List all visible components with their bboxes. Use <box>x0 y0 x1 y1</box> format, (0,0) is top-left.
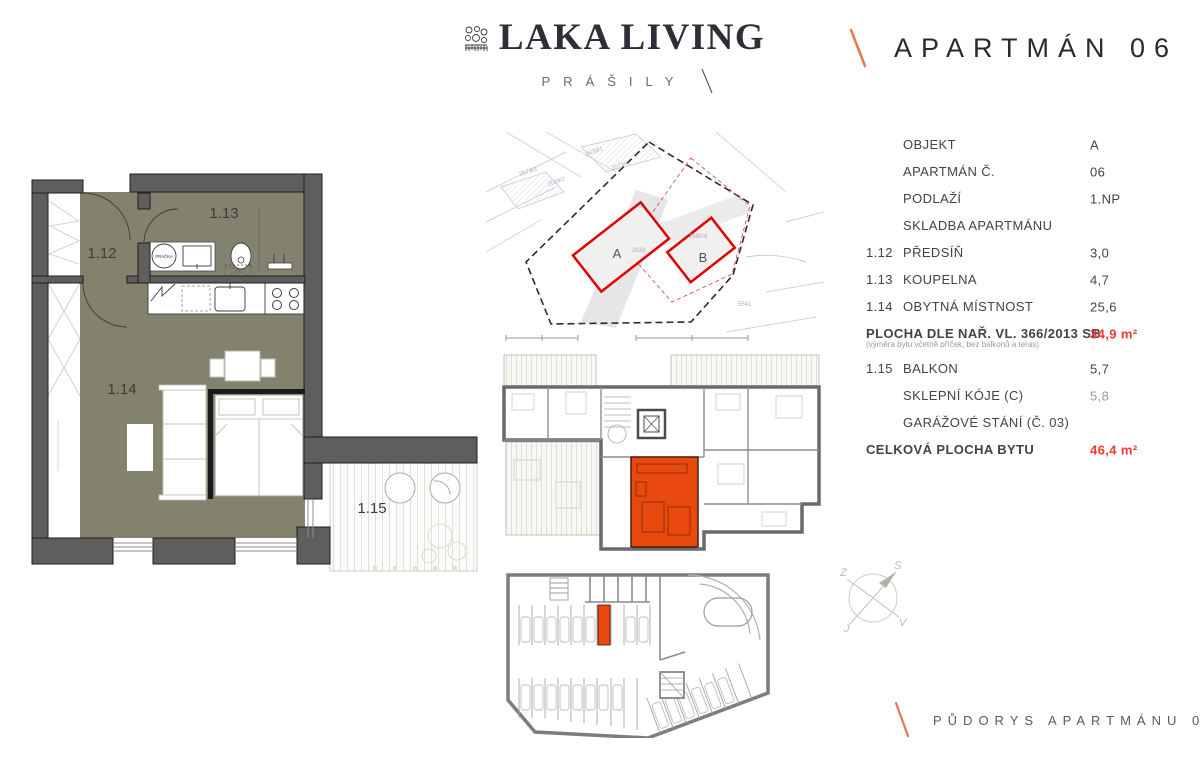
washer-label: PRAČKA <box>155 254 172 259</box>
title-slash-line <box>851 30 865 66</box>
balcony-deck <box>330 463 477 571</box>
hatched-parcel <box>501 172 564 209</box>
ornament-stamp-icon <box>461 23 491 53</box>
footer-text: PŮDORYS APARTMÁNU 06 <box>933 713 1200 728</box>
table-row: 1.12 PŘEDSÍŇ 3,0 <box>866 239 1166 266</box>
row-value: 3,0 <box>1090 245 1109 260</box>
building-b-label: B <box>699 250 708 265</box>
row-value: 4,7 <box>1090 272 1109 287</box>
garage-stair-block <box>660 672 684 698</box>
footer-slash-icon <box>893 700 911 740</box>
garage-plan-drawing <box>500 560 785 738</box>
page-title: APARTMÁN 06 <box>848 26 1178 70</box>
highlighted-apartment <box>631 457 698 547</box>
row-value: 25,6 <box>1090 299 1117 314</box>
sofa <box>159 385 206 500</box>
row-value: 5,7 <box>1090 361 1109 376</box>
coffee-table <box>127 424 153 471</box>
table-row-area-law: PLOCHA DLE NAŘ. VL. 366/2013 SB. 34,9 m² <box>866 320 1166 347</box>
row-label: PODLAŽÍ <box>903 191 961 206</box>
elevator <box>638 410 665 438</box>
compass-west: Z <box>839 567 848 579</box>
brand-logo: LAKA LIVING PRÁŠILY <box>448 16 778 95</box>
row-value: 1.NP <box>1090 191 1121 206</box>
row-label: PŘEDSÍŇ <box>903 245 964 260</box>
row-value: 06 <box>1090 164 1105 179</box>
table-row: OBJEKT A <box>866 131 1166 158</box>
row-value-area: 34,9 m² <box>1090 326 1138 341</box>
row-label: SKLEPNÍ KÓJE (C) <box>903 388 1024 403</box>
logo-slash-icon <box>700 67 714 95</box>
title-slash-icon <box>848 26 868 70</box>
compass-south: J <box>843 623 850 635</box>
room-label-living: 1.14 <box>107 381 136 398</box>
row-label: APARTMÁN Č. <box>903 164 995 179</box>
building-plan-drawing <box>486 352 826 564</box>
compass-east: V <box>899 617 908 629</box>
table-row: SKLEPNÍ KÓJE (C) 5,8 <box>866 382 1166 409</box>
table-row: APARTMÁN Č. 06 <box>866 158 1166 185</box>
room-label-bathroom: 1.13 <box>209 205 238 222</box>
table-row: 1.15 BALKON 5,7 <box>866 355 1166 382</box>
balcony-chair <box>430 473 460 503</box>
row-label: PLOCHA DLE NAŘ. VL. 366/2013 SB. <box>866 326 1105 341</box>
row-value: 5,8 <box>1090 388 1109 403</box>
row-label: OBJEKT <box>903 137 956 152</box>
room-label-hall: 1.12 <box>87 245 116 262</box>
kitchen-counter <box>148 280 305 314</box>
balcony-chair <box>385 473 415 503</box>
footer-caption: PŮDORYS APARTMÁNU 06 <box>893 700 1200 740</box>
wardrobe <box>48 193 80 538</box>
site-plan-drawing: A B 2639/1 2579/4 2579/3 2639/2 2633 258… <box>486 132 824 346</box>
compass-icon: S Z V J <box>836 556 912 640</box>
row-label: BALKON <box>903 361 958 376</box>
svg-text:5541: 5541 <box>738 302 752 308</box>
row-value: A <box>1090 137 1099 152</box>
page: LAKA LIVING PRÁŠILY APARTMÁN 06 <box>0 0 1200 778</box>
brand-subtitle: PRÁŠILY <box>542 74 687 89</box>
table-row: 1.14 OBYTNÁ MÍSTNOST 25,6 <box>866 293 1166 320</box>
svg-text:2633: 2633 <box>632 248 646 254</box>
apartment-info-table: OBJEKT A APARTMÁN Č. 06 PODLAŽÍ 1.NP SKL… <box>866 131 1166 463</box>
room-label-balcony: 1.15 <box>357 500 386 517</box>
highlighted-garage-stall <box>598 605 610 645</box>
row-label: SKLADBA APARTMÁNU <box>903 218 1052 233</box>
table-row: 1.13 KOUPELNA 4,7 <box>866 266 1166 293</box>
table-row: GARÁŽOVÉ STÁNÍ (Č. 03) <box>866 409 1166 436</box>
table-row: PODLAŽÍ 1.NP <box>866 185 1166 212</box>
row-label: KOUPELNA <box>903 272 977 287</box>
table-row-total: CELKOVÁ PLOCHA BYTU 46,4 m² <box>866 436 1166 463</box>
scale-bar <box>506 335 748 341</box>
building-a-label: A <box>613 246 622 261</box>
apartment-title: APARTMÁN 06 <box>894 33 1178 64</box>
row-label: GARÁŽOVÉ STÁNÍ (Č. 03) <box>903 415 1069 430</box>
bed <box>215 395 303 496</box>
brand-name: LAKA LIVING <box>499 16 765 59</box>
garage-outline <box>508 575 768 738</box>
floor-plan-drawing: PRAČKA <box>25 166 480 578</box>
row-label: OBYTNÁ MÍSTNOST <box>903 299 1033 314</box>
row-label: CELKOVÁ PLOCHA BYTU <box>866 442 1034 457</box>
table-row: SKLADBA APARTMÁNU <box>866 212 1166 239</box>
svg-text:2580/8: 2580/8 <box>689 234 708 240</box>
row-value-total: 46,4 m² <box>1090 442 1138 457</box>
compass-north: S <box>894 560 902 572</box>
footer-slash-line <box>896 703 908 736</box>
